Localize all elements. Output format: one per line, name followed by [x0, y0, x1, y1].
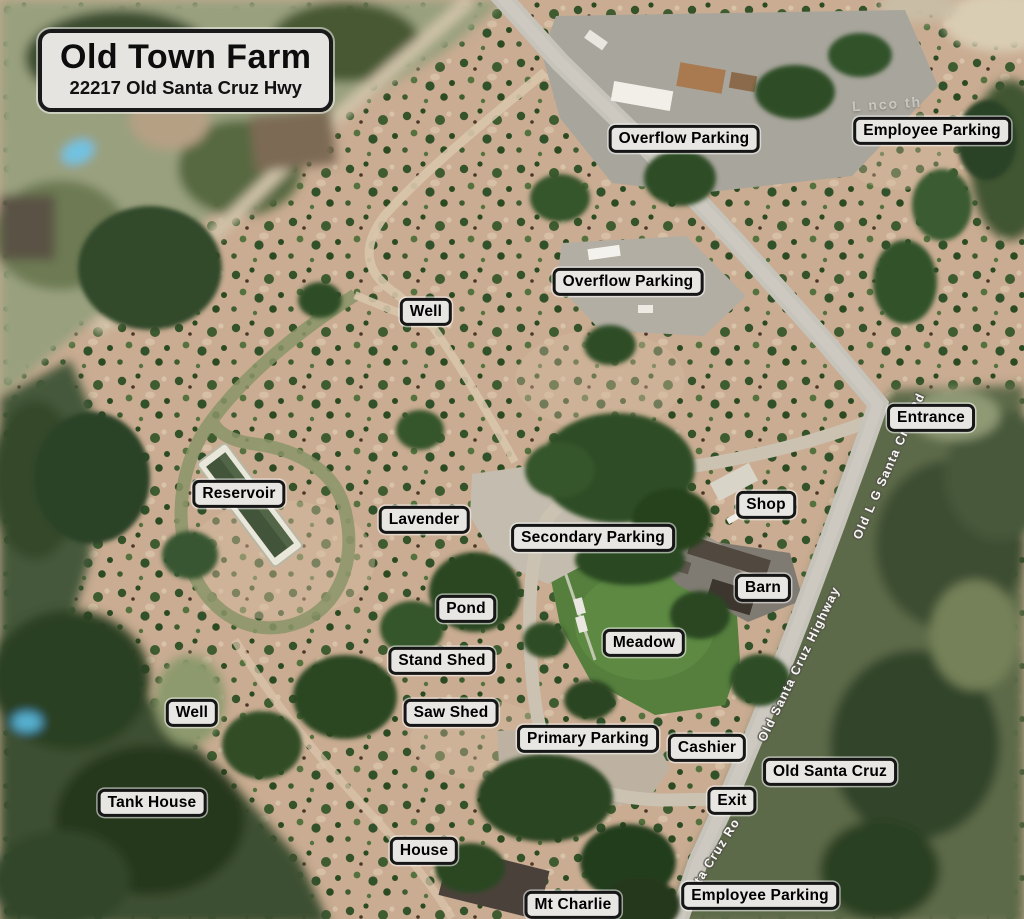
map-label-reservoir: Reservoir [192, 480, 285, 508]
map-label-house: House [390, 837, 458, 865]
map-address: 22217 Old Santa Cruz Hwy [60, 77, 311, 99]
map-label-tank-house: Tank House [98, 789, 207, 817]
map-label-entrance: Entrance [887, 404, 975, 432]
map-label-overflow-parking-central: Overflow Parking [553, 268, 704, 296]
map-label-mt-charlie: Mt Charlie [525, 891, 622, 919]
map-label-old-santa-cruz: Old Santa Cruz [763, 758, 897, 786]
map-title: Old Town Farm [60, 38, 311, 76]
map-label-well-west: Well [166, 699, 218, 727]
map-label-cashier: Cashier [668, 734, 746, 762]
map-label-overflow-parking-north: Overflow Parking [609, 125, 760, 153]
map-label-secondary-parking: Secondary Parking [511, 524, 675, 552]
map-label-primary-parking: Primary Parking [517, 725, 659, 753]
map-label-well-north: Well [400, 298, 452, 326]
map-label-barn: Barn [735, 574, 791, 602]
map-label-shop: Shop [736, 491, 796, 519]
map-title-box: Old Town Farm 22217 Old Santa Cruz Hwy [38, 29, 333, 112]
map-label-pond: Pond [436, 595, 496, 623]
swimming-pool [12, 712, 42, 732]
map-label-exit: Exit [707, 787, 756, 815]
map-label-meadow: Meadow [603, 629, 685, 657]
map-label-stand-shed: Stand Shed [388, 647, 495, 675]
map-label-employee-parking-south: Employee Parking [681, 882, 839, 910]
map-label-employee-parking-north: Employee Parking [853, 117, 1011, 145]
map-label-saw-shed: Saw Shed [404, 699, 499, 727]
farm-map: Old Town Farm 22217 Old Santa Cruz Hwy L… [0, 0, 1024, 919]
map-label-lavender: Lavender [379, 506, 470, 534]
